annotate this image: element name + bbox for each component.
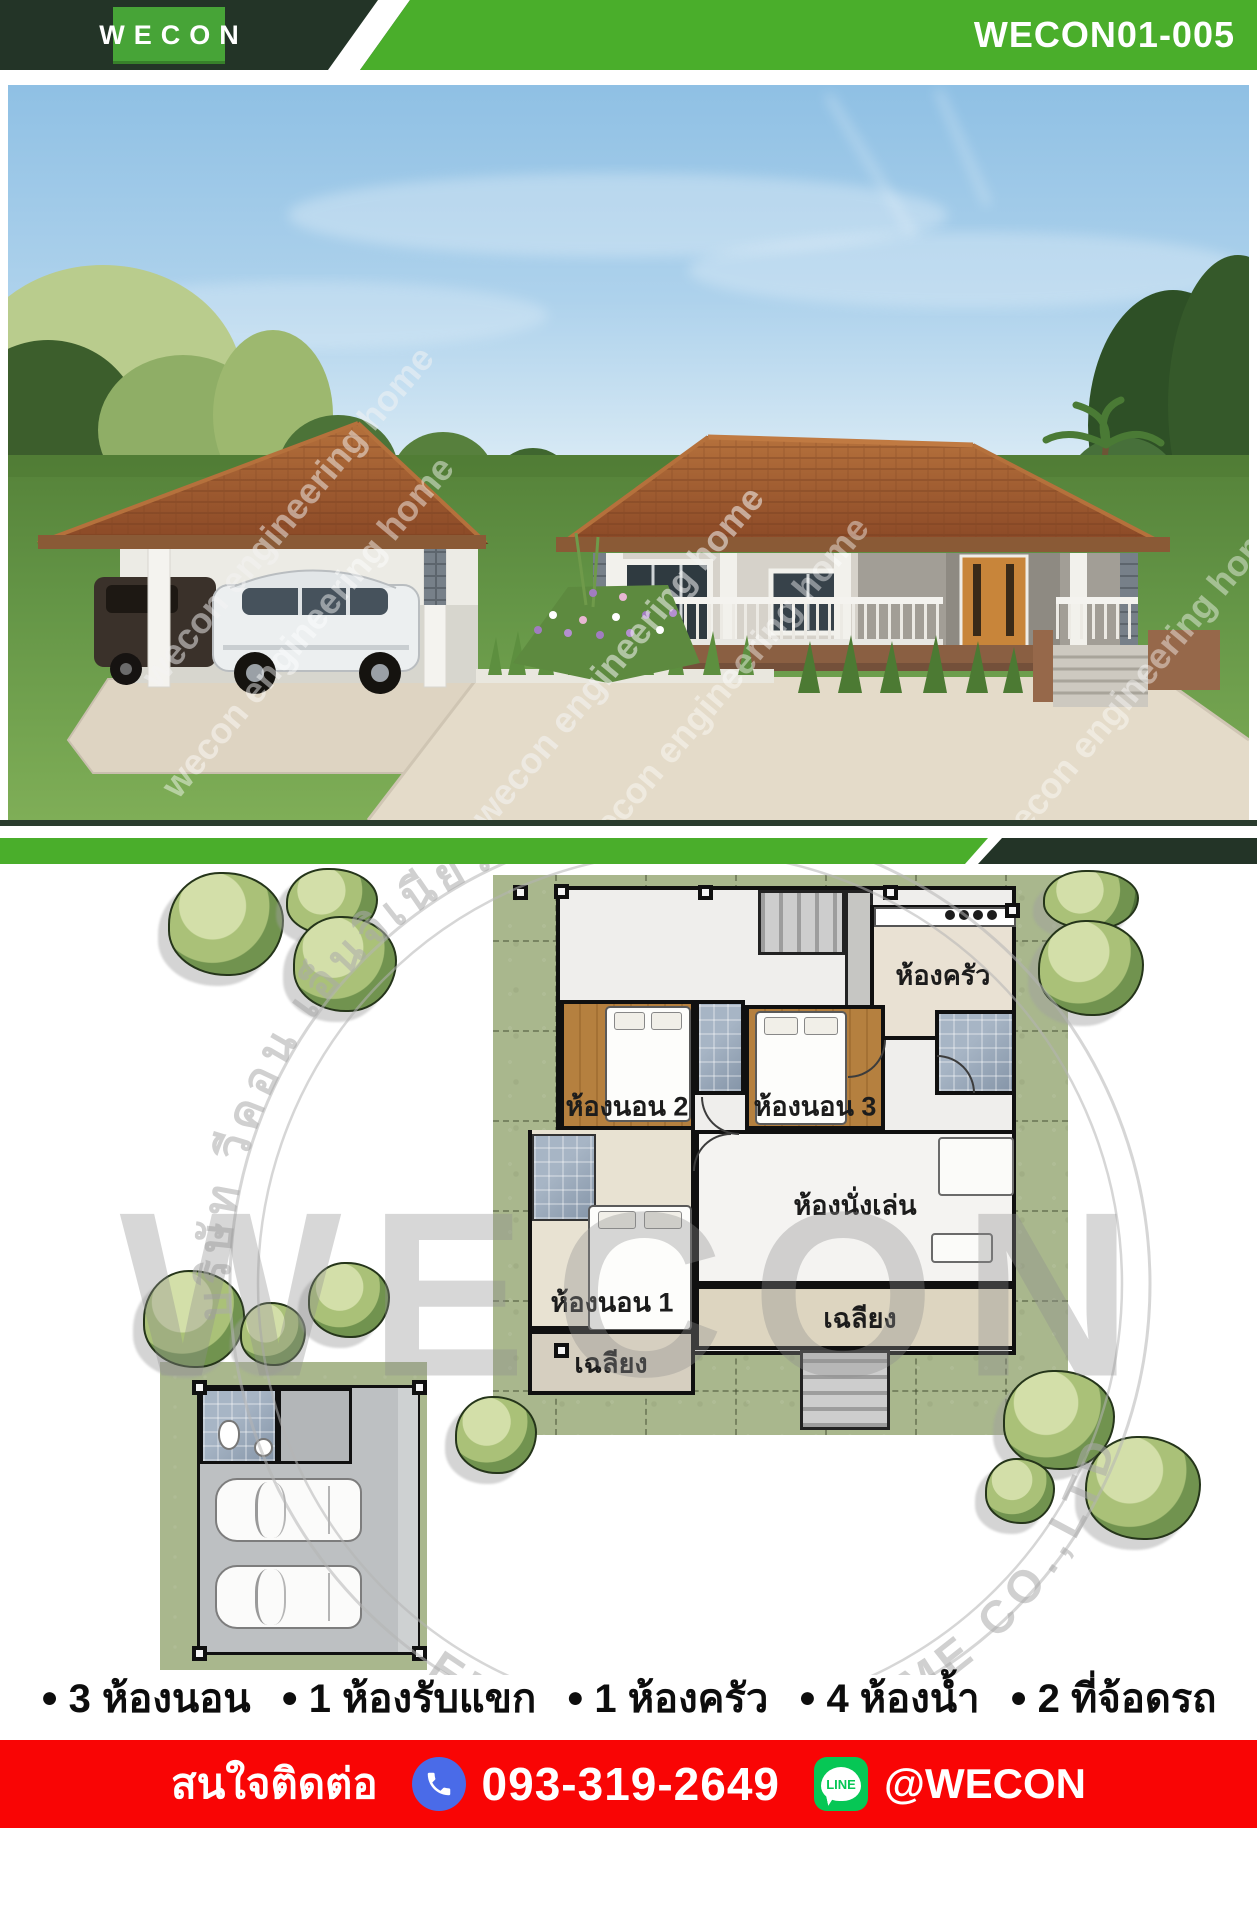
line-icon: LINE: [814, 1757, 868, 1811]
contact-label: สนใจติดต่อ: [171, 1751, 378, 1817]
garage-plan: [160, 1362, 427, 1670]
flyer-page: WECON WECON01-005: [0, 0, 1257, 1932]
bullet-icon: ●: [798, 1683, 816, 1713]
bullet-icon: ●: [281, 1683, 299, 1713]
bathroom-middle: [695, 1000, 745, 1095]
plan-tree: [985, 1458, 1055, 1524]
phone-icon: [412, 1757, 466, 1811]
wecon-logo: WECON: [113, 7, 225, 64]
model-code: WECON01-005: [974, 0, 1235, 70]
plan-tree: [293, 916, 397, 1012]
floor-plan-section: ห้องครัว ห้องนอน 2 ห้องนอน 3 ห้องนั่งเล่…: [0, 864, 1257, 1675]
bullet-icon: ●: [566, 1683, 584, 1713]
plan-tree: [168, 872, 284, 976]
garage-walkway: [398, 1388, 418, 1652]
feature-text: 1 ห้องรับแขก: [309, 1666, 537, 1730]
plan-tree: [143, 1270, 245, 1368]
bathroom-left-floor: [532, 1134, 596, 1221]
feature-text: 1 ห้องครัว: [594, 1666, 768, 1730]
feature-text: 4 ห้องน้ำ: [826, 1666, 979, 1730]
storage-room: [278, 1388, 352, 1464]
line-id: @WECON: [884, 1760, 1086, 1808]
header-bar: WECON WECON01-005: [0, 0, 1257, 70]
sofa: [938, 1137, 1014, 1196]
feature-parking: ● 2 ที่จ้อดรถ: [1010, 1666, 1217, 1730]
car-top-view: [215, 1478, 362, 1542]
section-divider: [0, 838, 1257, 864]
living-label: ห้องนั่งเล่น: [793, 1184, 916, 1227]
bullet-icon: ●: [1010, 1683, 1028, 1713]
plan-tree: [455, 1396, 537, 1474]
side-porch-label: เฉลียง: [574, 1342, 647, 1385]
toilet: [218, 1420, 240, 1450]
plan-tree: [1038, 920, 1144, 1016]
photo-bottom-border: [0, 820, 1257, 826]
bedroom3-label: ห้องนอน 3: [754, 1085, 877, 1128]
plan-tree: [240, 1302, 306, 1366]
tv-cabinet: [931, 1233, 993, 1263]
feature-bedrooms: ● 3 ห้องนอน: [40, 1666, 250, 1730]
plan-tree: [308, 1262, 390, 1338]
phone-number: 093-319-2649: [482, 1757, 780, 1811]
feature-text: 2 ที่จ้อดรถ: [1038, 1666, 1217, 1730]
car-top-view: [215, 1565, 362, 1629]
wecon-logo-text: WECON: [90, 20, 248, 51]
feature-living: ● 1 ห้องรับแขก: [281, 1666, 537, 1730]
feature-text: 3 ห้องนอน: [69, 1666, 251, 1730]
rear-porch-label: เฉลียง: [823, 1297, 896, 1340]
feature-kitchen: ● 1 ห้องครัว: [566, 1666, 768, 1730]
house-render-photo: wecon engineering home wecon engineering…: [8, 85, 1249, 820]
contact-bar: สนใจติดต่อ 093-319-2649 LINE @WECON: [0, 1740, 1257, 1828]
kitchen-label: ห้องครัว: [896, 954, 991, 997]
render-scene: wecon engineering home wecon engineering…: [8, 85, 1249, 820]
top-stairs: [758, 890, 845, 955]
bottom-stairs: [800, 1350, 890, 1430]
bedroom2-label: ห้องนอน 2: [566, 1085, 689, 1128]
line-contact: LINE @WECON: [814, 1757, 1086, 1811]
main-floor-plan: ห้องครัว ห้องนอน 2 ห้องนอน 3 ห้องนั่งเล่…: [493, 875, 1068, 1435]
plan-tree: [1085, 1436, 1201, 1540]
bullet-icon: ●: [40, 1683, 58, 1713]
sink: [254, 1438, 273, 1457]
phone-contact: 093-319-2649: [412, 1757, 780, 1811]
line-bubble: LINE: [821, 1767, 861, 1801]
wood-door: [961, 556, 1027, 647]
features-row: ● 3 ห้องนอน ● 1 ห้องรับแขก ● 1 ห้องครัว …: [0, 1670, 1257, 1726]
feature-bathrooms: ● 4 ห้องน้ำ: [798, 1666, 979, 1730]
bedroom1-label: ห้องนอน 1: [551, 1281, 674, 1324]
